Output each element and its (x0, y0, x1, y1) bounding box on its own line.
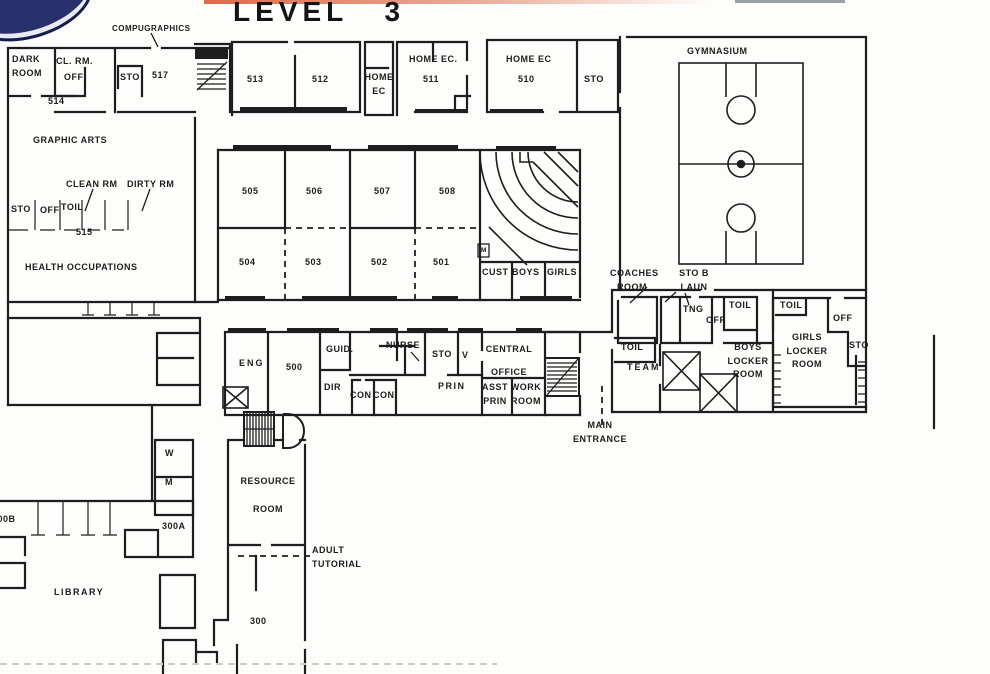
room-label-con: CON (373, 389, 395, 403)
room-label-sto-laun: STO B LAUN (677, 267, 711, 294)
room-label-w: W (165, 447, 174, 461)
stairs-icon (197, 62, 227, 90)
room-label-sto: STO (120, 71, 140, 85)
room-label-m: M (165, 476, 173, 490)
room-label-300: 300 (250, 615, 267, 629)
room-label-team: TEAM (627, 361, 661, 375)
stairs-icon (244, 412, 304, 449)
room-label-work-room: WORK ROOM (509, 381, 543, 408)
room-label-toil: TOIL (729, 299, 751, 313)
room-label-off: OFF (40, 204, 60, 218)
room-label-512: 512 (312, 73, 329, 87)
room-label-library: LIBRARY (54, 586, 104, 600)
room-label-sto: STO (11, 203, 31, 217)
room-label-boys: BOYS (512, 266, 540, 280)
tiered-seating-arcs (478, 152, 578, 265)
room-label-girls-locker-room: GIRLS LOCKER ROOM (781, 331, 833, 372)
room-label-home-ec-small: HOME EC (364, 71, 394, 98)
room-label-505: 505 (242, 185, 259, 199)
bottom-scan-line (0, 663, 497, 665)
room-label-eng: ENG (239, 357, 265, 371)
basketball-court-icon (679, 63, 803, 264)
room-label-coaches-room: COACHES ROOM (610, 267, 654, 294)
room-label-506: 506 (306, 185, 323, 199)
room-label-dir: DIR (324, 381, 341, 395)
room-label-dark-room: DARK ROOM (12, 53, 42, 80)
room-label-tng: TNG (683, 303, 704, 317)
room-label-501: 501 (433, 256, 450, 270)
room-label-vault: V (462, 349, 469, 363)
room-label-toil: TOIL (621, 341, 643, 355)
room-label-300a: 300A (162, 520, 186, 534)
room-label-sto: STO (432, 348, 452, 362)
room-label-508: 508 (439, 185, 456, 199)
room-label-503: 503 (305, 256, 322, 270)
room-label-cl-rm: CL. RM. (56, 55, 93, 69)
room-label-sto: STO (849, 339, 869, 353)
room-label-513: 513 (247, 73, 264, 87)
room-label-515: 515 (76, 226, 93, 240)
room-label-off: OFF (833, 312, 853, 326)
room-label-504: 504 (239, 256, 256, 270)
floor-plan-drawing (0, 0, 990, 674)
room-label-off: OFF (64, 71, 84, 85)
room-label-clean-rm: CLEAN RM (66, 178, 118, 192)
room-label-prin: PRIN (438, 380, 466, 394)
room-label-resource-room: RESOURCE ROOM (226, 468, 310, 524)
room-label-517: 517 (152, 69, 169, 83)
room-label-300b: 300B (0, 513, 16, 527)
stairs-icon (545, 358, 579, 396)
room-label-health-occupations: HEALTH OCCUPATIONS (25, 261, 138, 275)
room-label-compugraphics: COMPUGRAPHICS (112, 23, 191, 35)
room-label-511: 511 (423, 73, 439, 87)
room-label-girls: GIRLS (547, 266, 577, 280)
room-label-502: 502 (371, 256, 388, 270)
room-label-507: 507 (374, 185, 391, 199)
room-label-home-ec-511: HOME EC. (409, 53, 458, 67)
room-label-514: 514 (48, 95, 65, 109)
room-label-sto: STO (584, 73, 604, 87)
room-label-gymnasium: GYMNASIUM (687, 45, 748, 59)
room-label-dirty-rm: DIRTY RM (127, 178, 174, 192)
room-label-510: 510 (518, 73, 535, 87)
room-label-toil: TOIL (61, 201, 83, 215)
room-label-con: CON (350, 389, 372, 403)
room-label-adult-tutorial: ADULT TUTORIAL (312, 544, 361, 571)
room-label-boys-locker-room: BOYS LOCKER ROOM (722, 341, 774, 382)
room-label-asst-prin: ASST PRIN (481, 381, 509, 408)
room-label-graphic-arts: GRAPHIC ARTS (33, 134, 107, 148)
room-label-toil: TOIL (780, 299, 802, 313)
curved-landing (283, 414, 304, 449)
room-label-cust: CUST (482, 266, 509, 280)
room-label-central-office: CENTRAL OFFICE (484, 338, 534, 383)
room-label-guid: GUID. (326, 343, 354, 357)
label-main-entrance: MAIN ENTRANCE (572, 419, 628, 446)
room-label-500: 500 (286, 361, 303, 375)
room-label-m-small: M (481, 246, 487, 256)
scanned-floor-plan-page: LEVEL 3 (0, 0, 990, 674)
room-label-off: OFF (706, 314, 726, 328)
room-label-nurse: NURSE (386, 339, 420, 353)
room-label-home-ec-510: HOME EC (506, 53, 552, 67)
